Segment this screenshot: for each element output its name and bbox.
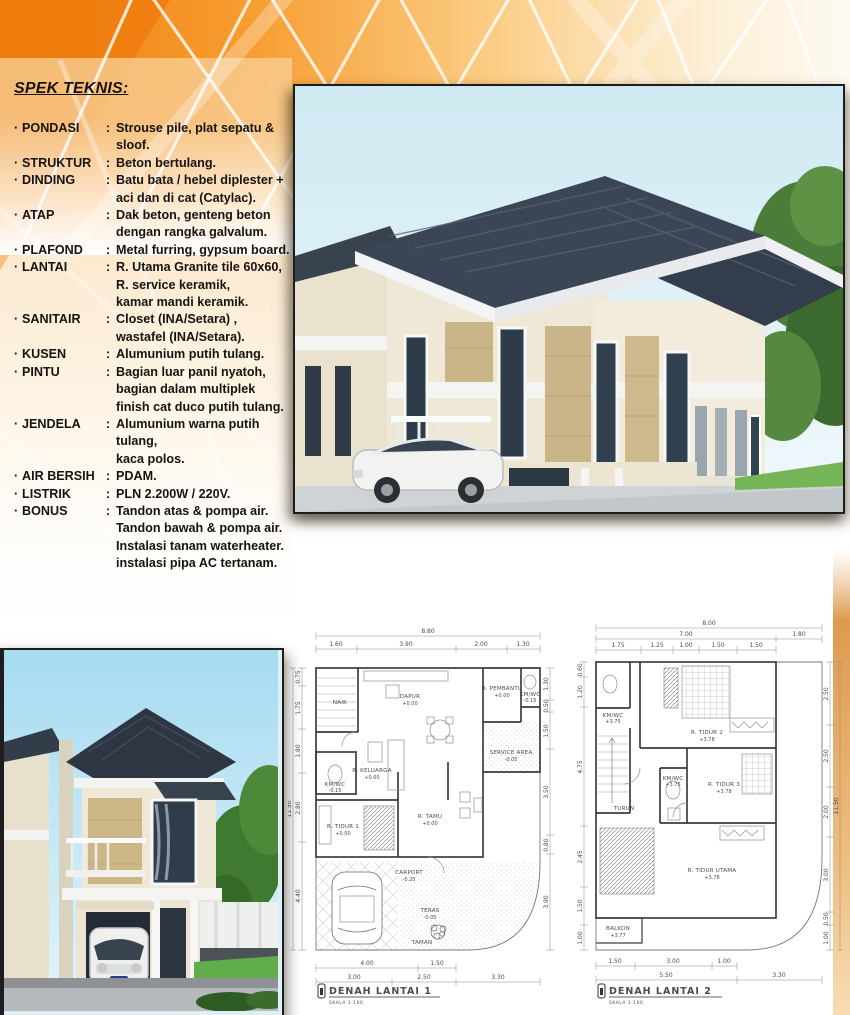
spec-row-pondasi: · PONDASI : Strouse pile, plat sepatu & … [14,120,292,155]
bullet-dot: · [14,416,22,433]
stone-panel-1 [445,322,493,382]
dim-label: 3.90 [399,641,413,648]
spec-colon: : [106,416,116,433]
room-label: TERAS [420,908,440,914]
house-render-front-photo [0,648,284,1015]
dim-label: 1.75 [611,642,625,649]
spec-label: AIR BERSIH [22,468,106,485]
spec-colon: : [106,486,116,503]
plan-title: DENAH LANTAI 2 [609,986,712,997]
spec-label: BONUS [22,503,106,520]
kitchen-counter [364,671,448,681]
room-elevation: -0.05 [424,915,437,921]
spec-value: Metal furring, gypsum board. [116,242,292,259]
bed-2 [682,666,730,718]
dim-label: 8.80 [421,628,435,635]
mid-slab [62,888,222,900]
car-taillight [353,470,363,478]
spec-value: Strouse pile, plat sepatu & sloof. [116,120,292,155]
dim-label: 3.00 [666,958,680,965]
spec-row-sanitair: · SANITAIR : Closet (INA/Setara) , wasta… [14,311,292,346]
dim-label: 1.50 [608,958,622,965]
spec-colon: : [106,311,116,328]
spec-row-air-bersih: · AIR BERSIH : PDAM. [14,468,292,485]
wardrobe-zigzag [732,722,768,728]
spec-row-dinding: · DINDING : Batu bata / hebel diplester … [14,172,292,207]
dim-label: 0.60 [577,663,584,677]
kitchen-island [386,685,399,698]
dim-label: 1.50 [577,899,584,913]
dim-label: 5.50 [659,972,673,979]
room-label: R. TIDUR 2 [691,730,723,736]
spec-value: Alumunium putih tulang. [116,346,292,363]
sofa [388,740,404,790]
dim-label: 4.75 [577,760,584,774]
room-elevation: +3.77 [610,933,625,939]
dim-label: 1.30 [543,677,550,691]
scale-figure-icon-fill [320,988,323,995]
room-elevation: +3.75 [605,719,620,725]
dim-label: 0.50 [823,912,830,926]
dim-label: 2.00 [823,805,830,819]
house-render-perspective-photo [293,84,845,514]
dim-label: 4.40 [295,889,302,903]
room-elevation: +3.75 [665,782,680,788]
spec-row-atap: · ATAP : Dak beton, genteng beton dengan… [14,207,292,242]
dim-label: 1.00 [577,931,584,945]
dim-label: 0.80 [543,838,550,852]
dim-label: 2.80 [295,801,302,815]
spec-value: Beton bertulang. [116,155,292,172]
dim-label: 3.50 [543,785,550,799]
spec-label: JENDELA [22,416,106,433]
spec-value: Tandon atas & pompa air. Tandon bawah & … [116,503,292,573]
spec-row-kusen: · KUSEN : Alumunium putih tulang. [14,346,292,363]
dim-label: 1.50 [543,724,550,738]
curb [4,978,278,988]
dim-label: 1.30 [516,641,530,648]
room-label: NAIK [333,700,347,706]
spec-colon: : [106,172,116,189]
spec-label: SANITAIR [22,311,106,328]
floor-plan-2: 8.00 7.00 1.80 1.75 1.25 1.00 1.50 1.50 … [572,618,850,1014]
spec-value: Alumunium warna putih tulang, kaca polos… [116,416,292,468]
spec-row-jendela: · JENDELA : Alumunium warna putih tulang… [14,416,292,468]
spec-colon: : [106,259,116,276]
dim-label: 8.00 [702,620,716,627]
room-elevation: -0.05 [505,757,518,763]
dim-label: 11.50 [288,800,293,817]
room-label: R. TIDUR 3 [708,782,740,788]
room-elevation: +0.00 [364,775,379,781]
room-label: DAPUR [400,694,420,700]
room-elevation: -0.15 [329,788,342,794]
dim-label: 3.30 [772,972,786,979]
plan-title: DENAH LANTAI 1 [329,986,432,997]
spec-row-pintu: · PINTU : Bagian luar panil nyatoh, bagi… [14,364,292,416]
dim-label: 3.00 [823,868,830,882]
dim-label: 1.00 [679,642,693,649]
dining-table [430,720,450,740]
spec-colon: : [106,242,116,259]
canopy [76,902,154,910]
dim-label: 2.00 [474,641,488,648]
sink [668,808,680,820]
spec-panel: SPEK TEKNIS: · PONDASI : Strouse pile, p… [14,80,292,573]
dim-label: 0.75 [295,670,302,684]
room-elevation: +3.78 [716,789,731,795]
spec-label: LISTRIK [22,486,106,503]
spec-label: STRUKTUR [22,155,106,172]
spec-row-listrik: · LISTRIK : PLN 2.200W / 220V. [14,486,292,503]
dim-label: 2.45 [577,850,584,864]
bullet-dot: · [14,346,22,363]
neighbor-unit [4,728,73,1011]
bed-1 [364,806,394,850]
fence-right [200,902,278,962]
room-label: CARPORT [395,870,423,876]
dim-label: 0.50 [543,699,550,713]
spec-colon: : [106,468,116,485]
toilet [328,765,342,783]
room-elevation: +0.00 [494,693,509,699]
spec-colon: : [106,364,116,381]
spec-value: PDAM. [116,468,292,485]
bullet-dot: · [14,468,22,485]
room-label: TAMAN [411,940,433,946]
dim-label: 1.80 [295,744,302,758]
dim-label: 3.00 [347,974,361,981]
spec-row-bonus: · BONUS : Tandon atas & pompa air. Tando… [14,503,292,573]
room-elevation: -0.20 [403,877,416,883]
spec-colon: : [106,503,116,520]
plan1-title-block: DENAH LANTAI 1 SKALA 1:100 [318,984,440,1006]
toilet-service [524,675,536,689]
floor-plan-1: 8.80 1.60 3.90 2.00 1.30 4.00 1.50 3.00 … [288,622,572,1014]
room-elevation: +0.00 [335,831,350,837]
room-label: BALKON [606,926,630,932]
spec-colon: : [106,346,116,363]
plan-scale: SKALA 1:100 [609,1000,643,1006]
spec-value: PLN 2.200W / 220V. [116,486,292,503]
spec-value: R. Utama Granite tile 60x60, R. service … [116,259,292,311]
bullet-dot: · [14,120,22,137]
bullet-dot: · [14,259,22,276]
room-label: R. TAMU [418,814,442,820]
room-elevation: +0.00 [402,701,417,707]
room-elevation: +3.78 [704,875,719,881]
spec-value: Batu bata / hebel diplester + aci dan di… [116,172,292,207]
dim-label: 7.00 [679,631,693,638]
room-label: R. PEMBANTU [482,686,523,692]
stairs-down [598,736,628,803]
dim-label: 1.60 [329,641,343,648]
dim-label: 3.30 [491,974,505,981]
spec-label: PINTU [22,364,106,381]
spec-label: DINDING [22,172,106,189]
bullet-dot: · [14,172,22,189]
spec-colon: : [106,207,116,224]
spec-value: Closet (INA/Setara) , wastafel (INA/Seta… [116,311,292,346]
bed-utama [600,828,654,894]
dim-label: 1.50 [430,960,444,967]
room-label: TURUN [613,806,635,812]
dim-label: 2.50 [823,749,830,763]
room-elevation: -0.15 [524,698,537,704]
spec-value: Bagian luar panil nyatoh, bagian dalam m… [116,364,292,416]
dim-label: 1.50 [749,642,763,649]
dim-label: 1.80 [792,631,806,638]
bullet-dot: · [14,155,22,172]
bullet-dot: · [14,242,22,259]
dim-label: 1.00 [717,958,731,965]
side-roof-slab [154,782,236,800]
room-elevation: +3.78 [699,737,714,743]
spec-value: Dak beton, genteng beton dengan rangka g… [116,207,292,242]
dim-label: 3.90 [543,895,550,909]
plan2-title-block: DENAH LANTAI 2 SKALA 1:100 [598,984,722,1006]
room-label: SERVICE AREA [490,750,533,756]
spec-label: LANTAI [22,259,106,276]
spec-colon: : [106,120,116,137]
spec-title: SPEK TEKNIS: [14,80,292,98]
spec-label: PONDASI [22,120,106,137]
spec-label: PLAFOND [22,242,106,259]
toilet-kmwc-1 [603,675,617,693]
spec-list: · PONDASI : Strouse pile, plat sepatu & … [14,120,292,573]
car-plan-icon [332,872,382,944]
bed-3 [742,754,772,794]
dim-label: 2.50 [417,974,431,981]
plan-scale: SKALA 1:100 [329,1000,363,1006]
bullet-dot: · [14,503,22,520]
dim-label: 1.00 [823,931,830,945]
spec-row-struktur: · STRUKTUR : Beton bertulang. [14,155,292,172]
bullet-dot: · [14,311,22,328]
spec-row-lantai: · LANTAI : R. Utama Granite tile 60x60, … [14,259,292,311]
spec-row-plafond: · PLAFOND : Metal furring, gypsum board. [14,242,292,259]
dim-label: 1.20 [577,685,584,699]
dim-label: 4.00 [360,960,374,967]
spec-label: ATAP [22,207,106,224]
dim-label: 1.50 [711,642,725,649]
door-swing [342,732,356,746]
dim-label: 2.50 [823,687,830,701]
flyer-page: SPEK TEKNIS: · PONDASI : Strouse pile, p… [0,0,850,1015]
bullet-dot: · [14,486,22,503]
bullet-dot: · [14,207,22,224]
room-label: R. TIDUR 1 [327,824,359,830]
dim-label: 11.50 [833,797,840,814]
dim-label: 1.75 [295,701,302,715]
room-label: R. KELUARGA [352,768,391,774]
spec-label: KUSEN [22,346,106,363]
room-label: R. TIDUR UTAMA [688,868,737,874]
bullet-dot: · [14,364,22,381]
spec-colon: : [106,155,116,172]
scale-figure-icon-fill [600,988,603,995]
dim-label: 1.25 [650,642,664,649]
room-elevation: +0.00 [422,821,437,827]
